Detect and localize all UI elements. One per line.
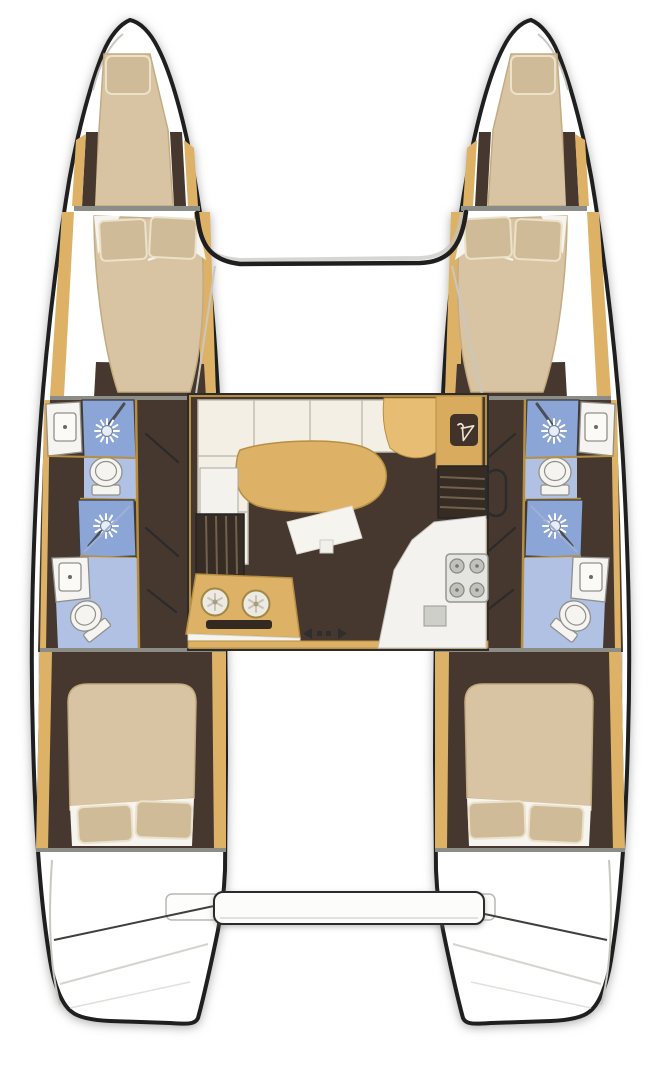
cockpit-area [232, 656, 430, 886]
hanger-plate [450, 414, 478, 446]
aft-platform-beam [214, 892, 484, 924]
trampoline-area [240, 20, 420, 220]
saloon [186, 394, 506, 650]
floorplan-canvas: Catamaran 4-cabin / 4-head interior floo… [0, 0, 661, 1080]
chart-desk [383, 398, 436, 458]
galley-island [186, 574, 300, 648]
counter-sink [424, 606, 446, 626]
stairs-icon [438, 466, 488, 518]
oven-slot [206, 620, 272, 629]
aft-platform [214, 892, 484, 924]
table-leg [320, 540, 333, 553]
crossbeam-shadow [200, 212, 462, 260]
companionway-steps-port [196, 514, 244, 576]
galley-fridge-panel [200, 468, 238, 516]
saloon-table [236, 441, 386, 512]
